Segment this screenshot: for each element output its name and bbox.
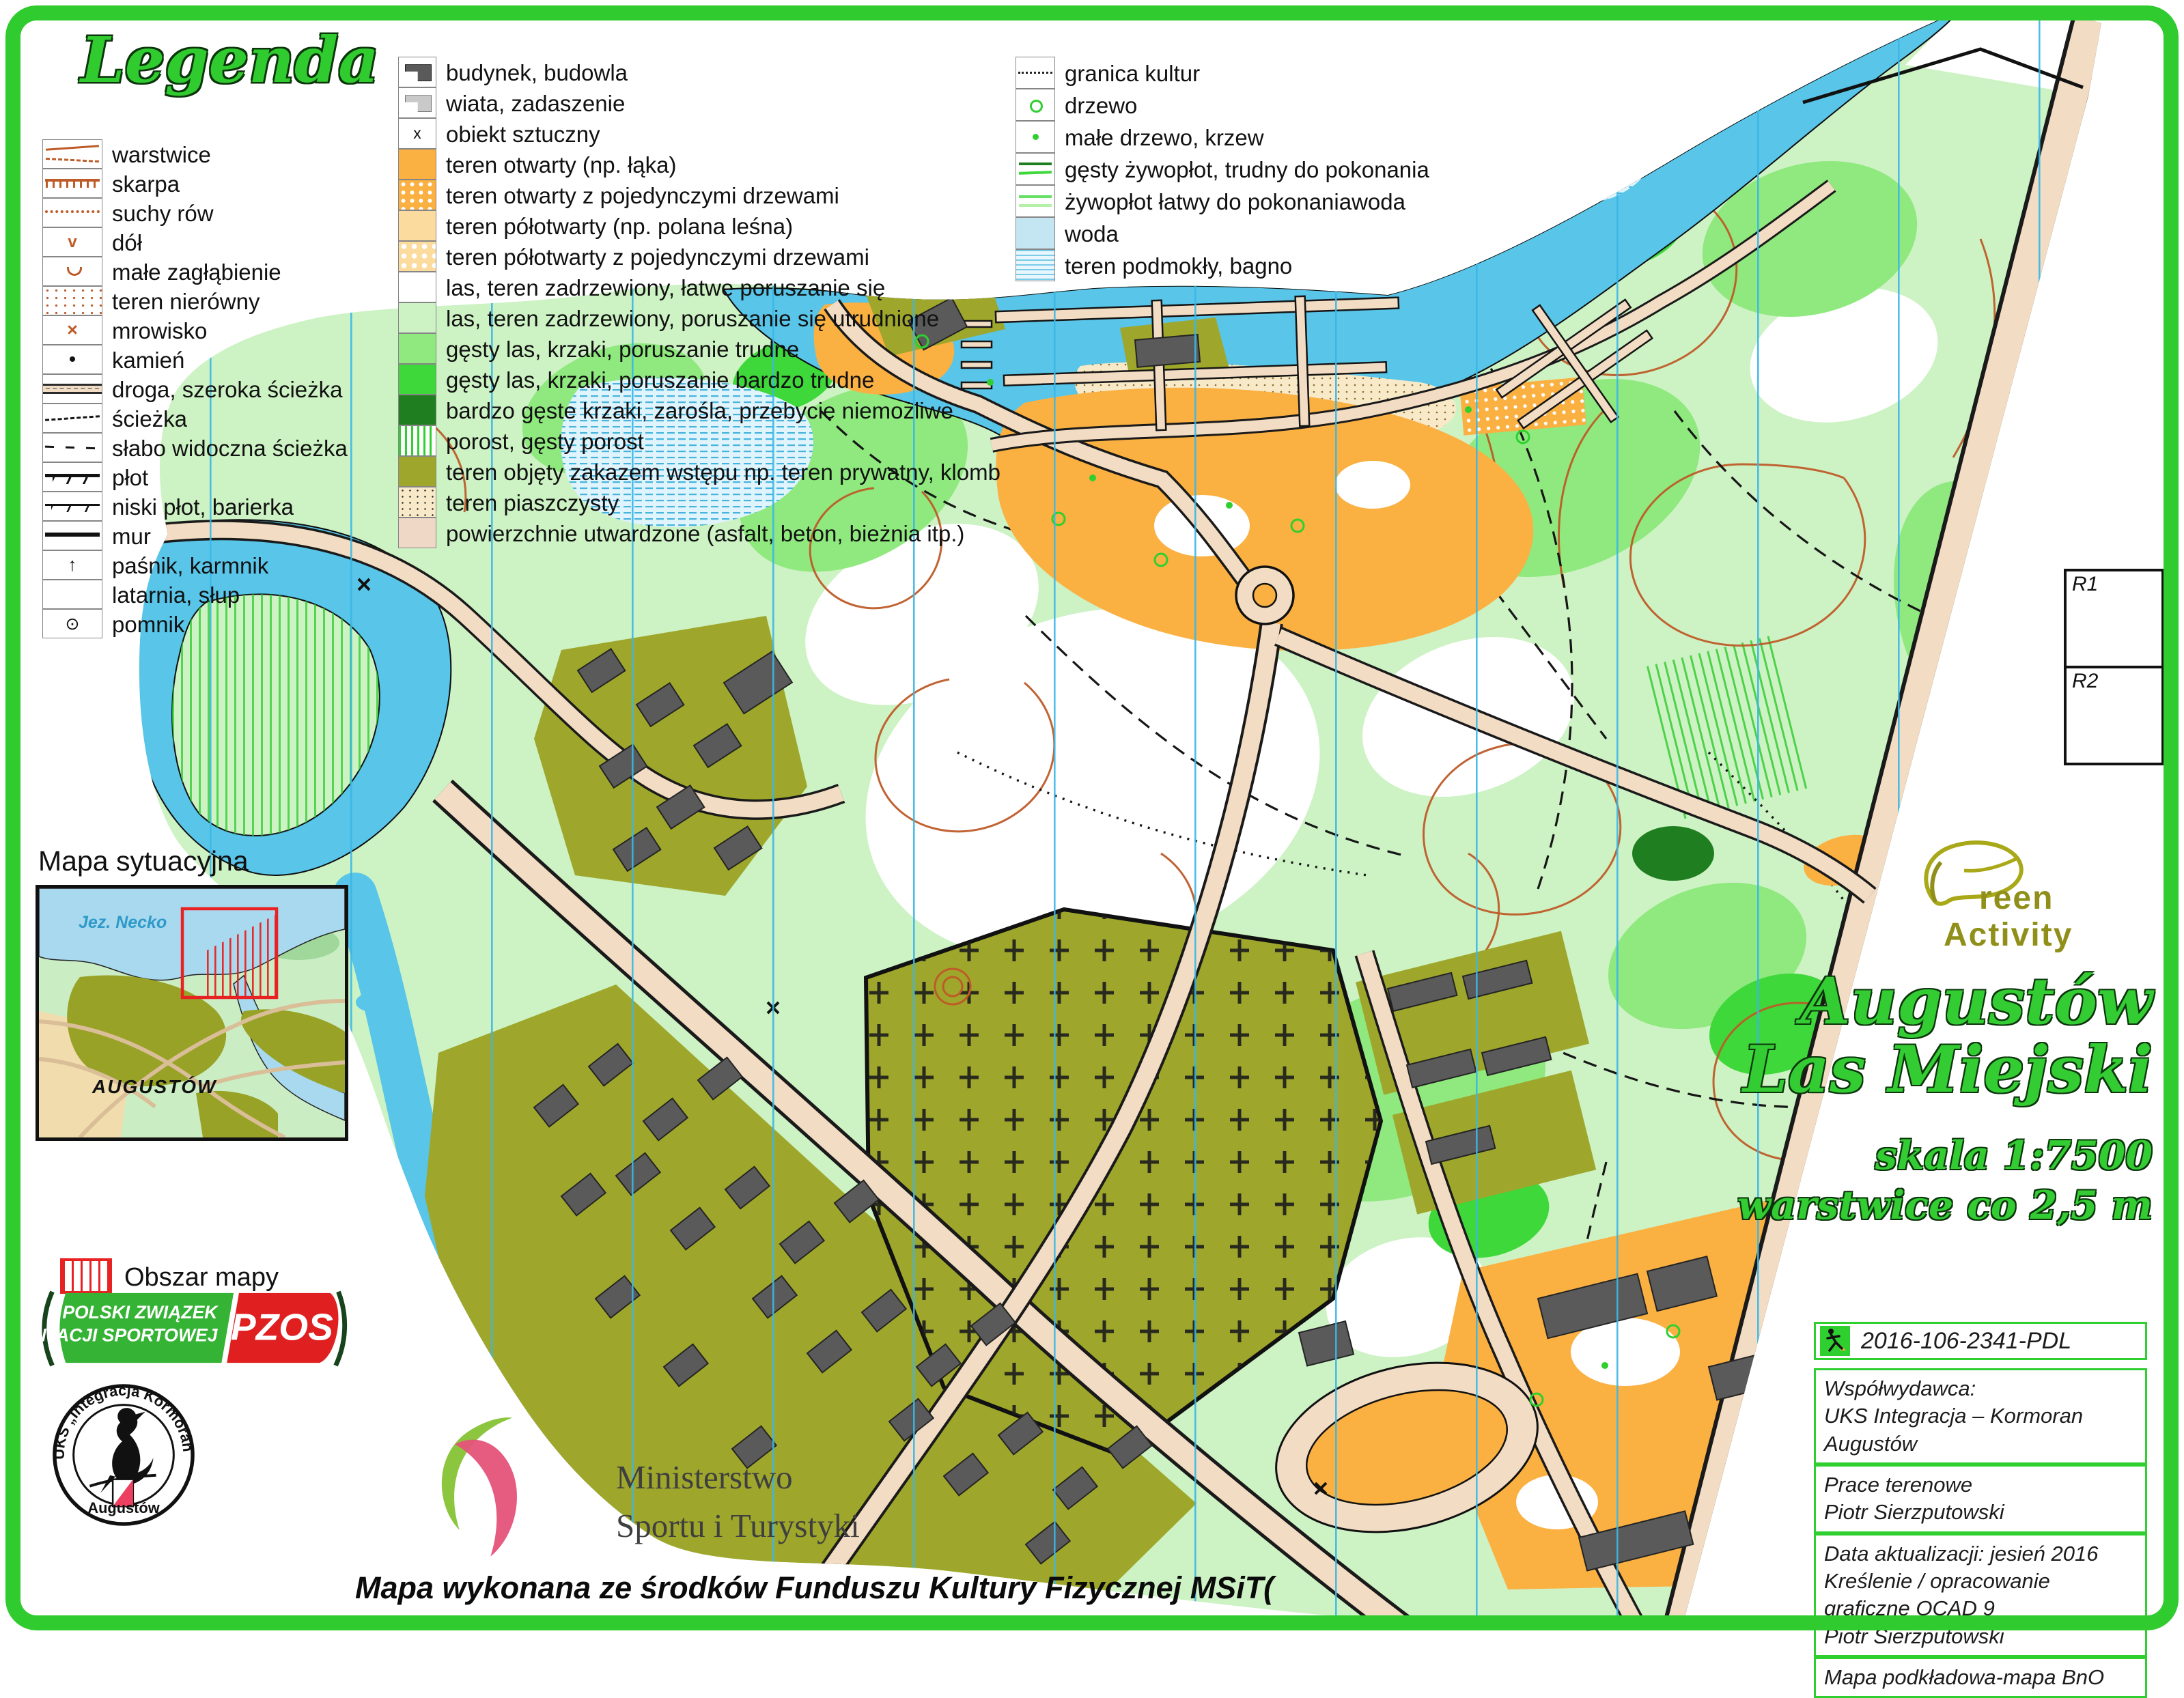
- legend-swatch-icon: [42, 139, 102, 169]
- legend-item-label: małe drzewo, krzew: [1065, 125, 1264, 151]
- credit-map-code: 2016-106-2341-PDL: [1861, 1326, 2071, 1356]
- legend-item: wiata, zadaszenie: [398, 88, 1000, 119]
- legend-swatch-icon: [398, 57, 436, 87]
- inset-lake-label: Jez. Necko: [79, 913, 167, 932]
- legend-item: porost, gęsty porost: [398, 426, 1000, 457]
- situational-map-heading: Mapa sytuacyjna: [38, 845, 249, 877]
- legend-item-label: mrowisko: [112, 318, 207, 344]
- legend-item: las, teren zadrzewiony, łatwe poruszanie…: [398, 272, 1000, 303]
- legend-item-label: mur: [112, 524, 151, 550]
- legend-item-label: dół: [112, 230, 142, 256]
- legend-item: teren otwarty z pojedynczymi drzewami: [398, 180, 1000, 211]
- legend-item: budynek, budowla: [398, 57, 1000, 88]
- legend-item: powierzchnie utwardzone (asfalt, beton, …: [398, 518, 1000, 549]
- legend-item: niski płot, barierka: [42, 492, 348, 522]
- ministry-logo-text: Ministerstwo Sportu i Turystyki: [616, 1453, 860, 1550]
- legend-item-label: bardzo gęste krzaki, zarośla, przebycie …: [446, 398, 953, 424]
- legend-item-label: paśnik, karmnik: [112, 553, 268, 579]
- legend-item-label: gęsty żywopłot, trudny do pokonania: [1065, 157, 1429, 183]
- legend-item: płot: [42, 463, 348, 492]
- legend-swatch-icon: [1016, 121, 1055, 153]
- legend-swatch-icon: [398, 456, 436, 487]
- legend-item-label: obiekt sztuczny: [446, 122, 600, 147]
- legend-item: teren półotwarty z pojedynczymi drzewami: [398, 242, 1000, 272]
- funding-note: Mapa wykonana ze środków Funduszu Kultur…: [355, 1570, 1274, 1606]
- legend-swatch-icon: [42, 492, 102, 521]
- legend-item: mur: [42, 522, 348, 551]
- legend-swatch-icon: x: [398, 118, 436, 149]
- legend-item-label: teren półotwarty (np. polana leśna): [446, 214, 793, 240]
- credit-boxes: Współwydawca:UKS Integracja – Kormoran A…: [1814, 1368, 2147, 1698]
- legend-swatch-icon: [42, 404, 102, 433]
- legend-swatch-icon: [398, 333, 436, 364]
- legend-swatch-icon: [42, 521, 102, 550]
- legend-item: skarpa: [42, 169, 348, 199]
- map-title-line1: Augustów: [1634, 968, 2153, 1036]
- legend-item-label: gęsty las, krzaki, poruszanie bardzo tru…: [446, 367, 874, 393]
- legend-item: małe drzewo, krzew: [1016, 122, 1429, 154]
- legend-item-label: porost, gęsty porost: [446, 429, 644, 455]
- legend-swatch-icon: [42, 462, 102, 492]
- legend-column-3: granica kultur drzewo małe drzewo, krzew…: [1016, 57, 1429, 282]
- legend-item-label: teren nierówny: [112, 289, 260, 315]
- registration-box-r1: R1: [2064, 569, 2164, 668]
- legend-item-label: teren objęty zakazem wstępu np. teren pr…: [446, 459, 1000, 485]
- legend-item: teren półotwarty (np. polana leśna): [398, 211, 1000, 242]
- legend-item-label: powierzchnie utwardzone (asfalt, beton, …: [446, 521, 964, 547]
- legend-swatch-icon: [1016, 89, 1055, 121]
- legend-swatch-icon: [42, 198, 102, 227]
- kormoran-club-logo: UKS „Integracja Kormoran” Augustów: [49, 1381, 198, 1529]
- legend-swatch-icon: [398, 180, 436, 210]
- legend-item: teren podmokły, bagno: [1016, 250, 1429, 282]
- ministry-line2: Sportu i Turystyki: [616, 1501, 860, 1550]
- legend-item-label: drzewo: [1065, 93, 1137, 119]
- legend-column-1: warstwice skarpa suchy rów v dół małe za…: [42, 140, 348, 639]
- legend-item: v dół: [42, 228, 348, 257]
- legend-item: gęsty żywopłot, trudny do pokonania: [1016, 154, 1429, 186]
- legend-swatch-icon: [398, 487, 436, 518]
- legend-column-2: budynek, budowla wiata, zadaszenie x obi…: [398, 57, 1000, 549]
- legend-swatch-icon: [1016, 185, 1055, 217]
- legend-item: woda: [1016, 218, 1429, 250]
- legend-item: droga, szeroka ścieżka: [42, 375, 348, 404]
- legend-swatch-icon: ⊙: [42, 609, 102, 638]
- legend-item-label: las, teren zadrzewiony, łatwe poruszanie…: [446, 275, 885, 301]
- situational-map-graphic: Jez. Necko AUGUSTÓW: [39, 888, 345, 1137]
- legend-item: słabo widoczna ścieżka: [42, 434, 348, 463]
- legend-swatch-icon: [1016, 57, 1055, 89]
- legend-swatch-icon: [1016, 249, 1055, 281]
- green-activity-line1: reen: [1979, 879, 2054, 917]
- map-title-block: Augustów Las Miejski skala 1:7500 warstw…: [1634, 968, 2153, 1228]
- legend-swatch-icon: [398, 302, 436, 333]
- legend-item-label: małe zagłąbienie: [112, 259, 281, 285]
- legend-title: Legenda: [81, 23, 379, 97]
- legend-swatch-icon: ×: [42, 315, 102, 345]
- legend-swatch-icon: [42, 257, 102, 286]
- legend-item-label: latarnia, słup: [112, 582, 240, 608]
- map-scale: skala 1:7500: [1634, 1133, 2153, 1178]
- legend-item-label: ścieżka: [112, 406, 187, 432]
- legend-item: • kamień: [42, 345, 348, 375]
- legend-item: bardzo gęste krzaki, zarośla, przebycie …: [398, 395, 1000, 426]
- legend-swatch-icon: [42, 374, 102, 404]
- legend-swatch-icon: •: [42, 345, 102, 374]
- pzos-logo: POLSKI ZWIĄZEK ORIENTACJI SPORTOWEJ PZOS: [33, 1288, 359, 1368]
- registration-box-r2: R2: [2064, 666, 2164, 765]
- pzos-abbr: PZOS: [231, 1306, 333, 1348]
- legend-swatch-icon: v: [42, 227, 102, 257]
- legend-swatch-icon: [398, 518, 436, 548]
- legend-item-label: teren otwarty (np. łąka): [446, 152, 676, 178]
- legend-swatch-icon: [1016, 217, 1055, 249]
- green-activity-line2: Activity: [1944, 916, 2073, 954]
- legend-item: teren otwarty (np. łąka): [398, 150, 1000, 180]
- ministry-line1: Ministerstwo: [616, 1453, 860, 1501]
- legend-item: teren objęty zakazem wstępu np. teren pr…: [398, 457, 1000, 487]
- legend-item: latarnia, słup: [42, 580, 348, 610]
- kormoran-city-text: Augustów: [87, 1499, 159, 1516]
- legend-item-label: teren podmokły, bagno: [1065, 253, 1292, 279]
- credit-box: Prace terenowePiotr Sierzputowski: [1814, 1464, 2147, 1533]
- legend-item-label: warstwice: [112, 142, 211, 168]
- legend-item-label: słabo widoczna ścieżka: [112, 436, 348, 462]
- legend-swatch-icon: [398, 395, 436, 425]
- legend-item-label: kamień: [112, 348, 184, 373]
- legend-item-label: niski płot, barierka: [112, 494, 294, 520]
- legend-swatch-icon: [398, 241, 436, 272]
- legend-item-label: suchy rów: [112, 201, 214, 227]
- legend-item: gęsty las, krzaki, poruszanie bardzo tru…: [398, 365, 1000, 395]
- legend-swatch-icon: [398, 87, 436, 118]
- legend-item-label: płot: [112, 465, 148, 491]
- legend-item: teren nierówny: [42, 287, 348, 316]
- legend-item: x obiekt sztuczny: [398, 119, 1000, 150]
- legend-item-label: las, teren zadrzewiony, poruszanie się u…: [446, 306, 939, 332]
- ministry-logo-mark: [377, 1405, 575, 1576]
- legend-item: granica kultur: [1016, 57, 1429, 89]
- inset-city-label: AUGUSTÓW: [92, 1076, 217, 1097]
- map-title-line2: Las Miejski: [1634, 1036, 2153, 1105]
- map-contour-interval: warstwice co 2,5 m: [1634, 1183, 2153, 1228]
- legend-item-label: gęsty las, krzaki, poruszanie trudne: [446, 337, 799, 363]
- legend-item: żywopłot łatwy do pokonaniawoda: [1016, 186, 1429, 218]
- credit-box: Mapa podkładowa-mapa BnO: [1814, 1657, 2147, 1698]
- credits-panel: 2016-106-2341-PDL Współwydawca:UKS Integ…: [1814, 1322, 2147, 1698]
- credit-map-code-box: 2016-106-2341-PDL: [1814, 1322, 2147, 1360]
- legend-swatch-icon: [42, 286, 102, 315]
- legend-swatch-icon: ↑: [42, 550, 102, 580]
- legend-item: warstwice: [42, 140, 348, 169]
- legend-item: × mrowisko: [42, 316, 348, 345]
- legend-swatch-icon: [398, 425, 436, 456]
- legend-item-label: droga, szeroka ścieżka: [112, 377, 343, 403]
- legend-item-label: skarpa: [112, 171, 180, 197]
- legend-swatch-icon: [398, 364, 436, 395]
- credit-box: Data aktualizacji: jesień 2016Kreślenie …: [1814, 1533, 2147, 1657]
- legend-item: suchy rów: [42, 199, 348, 228]
- legend-swatch-icon: [1016, 153, 1055, 185]
- legend-item: ścieżka: [42, 404, 348, 434]
- legend-item: ↑ paśnik, karmnik: [42, 551, 348, 580]
- legend-item-label: budynek, budowla: [446, 60, 628, 86]
- legend-swatch-icon: [42, 433, 102, 462]
- legend-swatch-icon: [398, 210, 436, 241]
- legend-item: teren piaszczysty: [398, 487, 1000, 518]
- legend-item-label: granica kultur: [1065, 61, 1200, 87]
- credit-box: Współwydawca:UKS Integracja – Kormoran A…: [1814, 1368, 2147, 1464]
- legend-item-label: woda: [1065, 221, 1119, 247]
- legend-swatch-icon: [42, 580, 102, 609]
- legend-swatch-icon: [398, 149, 436, 180]
- legend-item-label: żywopłot łatwy do pokonaniawoda: [1065, 189, 1405, 215]
- legend-item: ⊙ pomnik: [42, 610, 348, 639]
- legend-item-label: pomnik: [112, 612, 184, 638]
- legend-item-label: teren piaszczysty: [446, 490, 619, 516]
- legend-item-label: wiata, zadaszenie: [446, 91, 625, 117]
- pzos-line2: ORIENTACJI SPORTOWEJ: [33, 1325, 219, 1346]
- legend-item: gęsty las, krzaki, poruszanie trudne: [398, 334, 1000, 365]
- legend-swatch-icon: [398, 272, 436, 302]
- legend-item: las, teren zadrzewiony, poruszanie się u…: [398, 303, 1000, 334]
- legend-item-label: teren otwarty z pojedynczymi drzewami: [446, 183, 839, 209]
- legend-item-label: teren półotwarty z pojedynczymi drzewami: [446, 244, 869, 270]
- legend-item: małe zagłąbienie: [42, 257, 348, 287]
- orienteering-runner-icon: [1820, 1326, 1850, 1356]
- pzos-line1: POLSKI ZWIĄZEK: [62, 1302, 219, 1322]
- legend-item: drzewo: [1016, 89, 1429, 122]
- legend-swatch-icon: [42, 169, 102, 198]
- situational-map-inset: Jez. Necko AUGUSTÓW: [36, 885, 348, 1141]
